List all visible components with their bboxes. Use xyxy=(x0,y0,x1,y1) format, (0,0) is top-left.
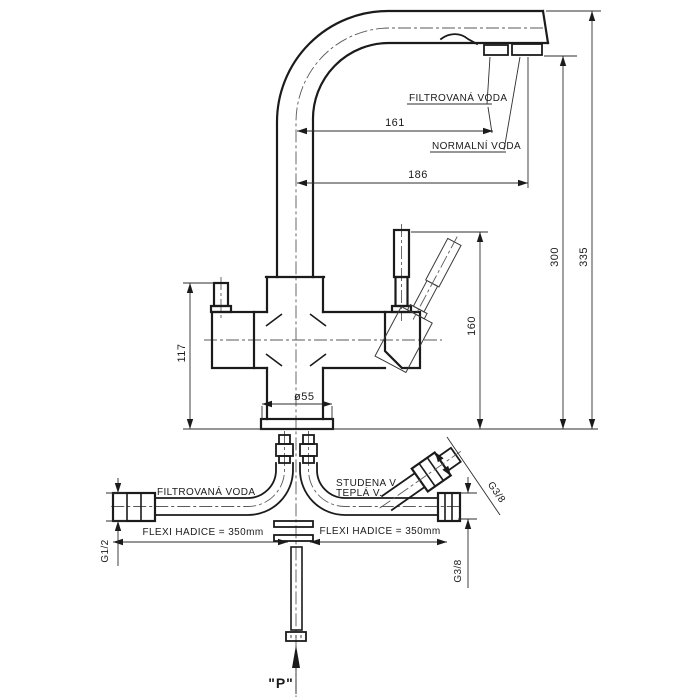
mix-hose-nut xyxy=(438,493,460,521)
filtered-water-top-label: FILTROVANÁ VODA xyxy=(409,91,507,104)
spout-tip-face xyxy=(543,11,548,43)
faucet-body xyxy=(212,277,420,429)
phantom-centerline xyxy=(413,237,457,320)
dim-base-diameter: ø55 xyxy=(262,391,332,419)
dim-flexi-left: FLEXI HADICE = 350mm xyxy=(113,527,288,545)
dim-flexi-right: FLEXI HADICE = 350mm xyxy=(310,526,447,545)
base-flange xyxy=(261,419,333,429)
callouts: FILTROVANÁ VODA NORMALNÍ VODA FILTROVANÁ… xyxy=(157,91,521,691)
filtered-hose-nut xyxy=(113,493,155,521)
mounting-hardware xyxy=(274,521,313,694)
thread-g38-diagonal-label: G3/8 xyxy=(485,480,507,505)
dim-186-value: 186 xyxy=(408,169,428,181)
normal-water-label: NORMALNÍ VODA xyxy=(432,139,521,152)
dim-o55-line xyxy=(262,404,332,419)
thread-g38-vertical-label: G3/8 xyxy=(453,559,464,582)
dim-160-value: 160 xyxy=(466,316,478,336)
dim-335: 335 xyxy=(546,11,601,429)
dim-g38d-line xyxy=(447,437,500,515)
pressure-mark-label: "P" xyxy=(268,675,294,691)
dim-117-value: 117 xyxy=(176,343,188,362)
dim-117: 117 xyxy=(176,283,214,429)
phantom-valve-body xyxy=(375,307,432,373)
dim-300-value: 300 xyxy=(549,247,561,267)
centerlines xyxy=(110,28,543,697)
filtered-hose-nut-facets xyxy=(127,493,141,521)
dim-335-value: 335 xyxy=(578,247,590,267)
hose-connectors xyxy=(276,435,317,463)
spout-inner-edge xyxy=(313,43,548,277)
threaded-stud xyxy=(291,547,302,630)
dim-160: 160 xyxy=(411,232,488,429)
dim-186: 186 xyxy=(297,57,528,188)
mix-hose-nut-facets xyxy=(445,493,452,521)
technical-drawing-sheet: 161 186 300 335 160 117 xyxy=(0,0,700,700)
thread-g12-label: G1/2 xyxy=(100,539,111,562)
filtered-water-hose-label: FILTROVANÁ VODA xyxy=(157,485,255,498)
faucet-technical-drawing: 161 186 300 335 160 117 xyxy=(0,0,700,700)
assembly-arrow-head xyxy=(292,645,300,668)
dim-161-value: 161 xyxy=(385,117,405,129)
filtered-water-outlet xyxy=(484,45,508,55)
dim-o55-value: ø55 xyxy=(294,391,314,403)
dim-300: 300 xyxy=(544,56,577,429)
right-lever-rotated-phantom xyxy=(375,229,474,373)
hot-water-label: TEPLÁ V. xyxy=(336,486,382,499)
flexi-left-label: FLEXI HADICE = 350mm xyxy=(142,527,263,538)
flexi-right-label: FLEXI HADICE = 350mm xyxy=(319,526,440,537)
mounting-plate-upper xyxy=(274,521,313,527)
dim-g38-diagonal: G3/8 xyxy=(435,437,507,515)
washer-slots xyxy=(291,635,301,638)
normal-water-outlet xyxy=(512,44,542,55)
